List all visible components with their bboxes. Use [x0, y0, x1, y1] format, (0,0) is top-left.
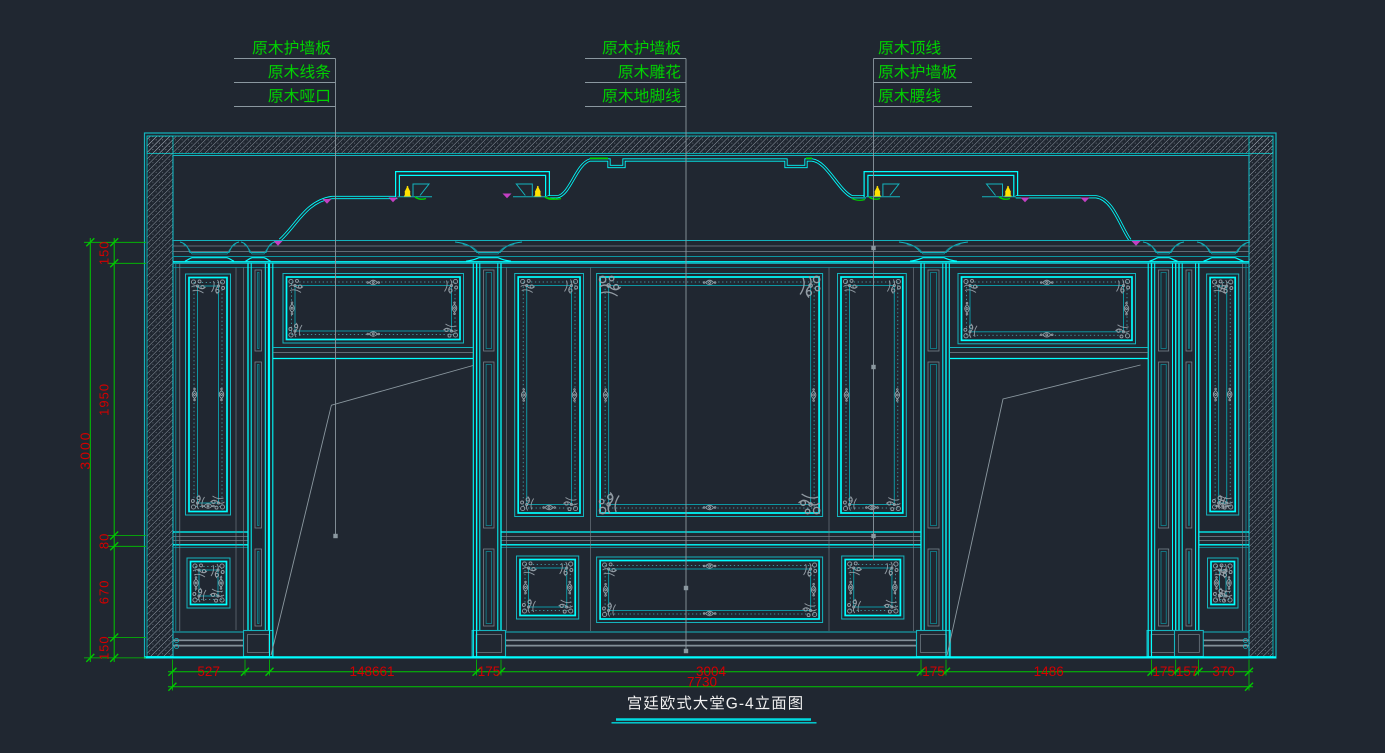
svg-text:G-4: G-4 — [726, 696, 754, 713]
svg-text:148661: 148661 — [349, 664, 394, 679]
svg-text:7730: 7730 — [687, 675, 717, 690]
svg-text:370: 370 — [1212, 664, 1235, 679]
svg-text:150: 150 — [97, 240, 112, 265]
svg-text:175: 175 — [478, 664, 501, 679]
svg-text:527: 527 — [197, 664, 220, 679]
svg-text:3000: 3000 — [77, 430, 93, 469]
svg-text:1950: 1950 — [97, 383, 112, 416]
svg-text:175: 175 — [922, 664, 945, 679]
svg-text:150: 150 — [97, 635, 112, 660]
svg-text:670: 670 — [97, 580, 112, 605]
svg-text:1486: 1486 — [1034, 664, 1064, 679]
svg-text:175: 175 — [1152, 664, 1175, 679]
svg-text:80: 80 — [97, 533, 112, 549]
svg-text:157: 157 — [1176, 664, 1199, 679]
